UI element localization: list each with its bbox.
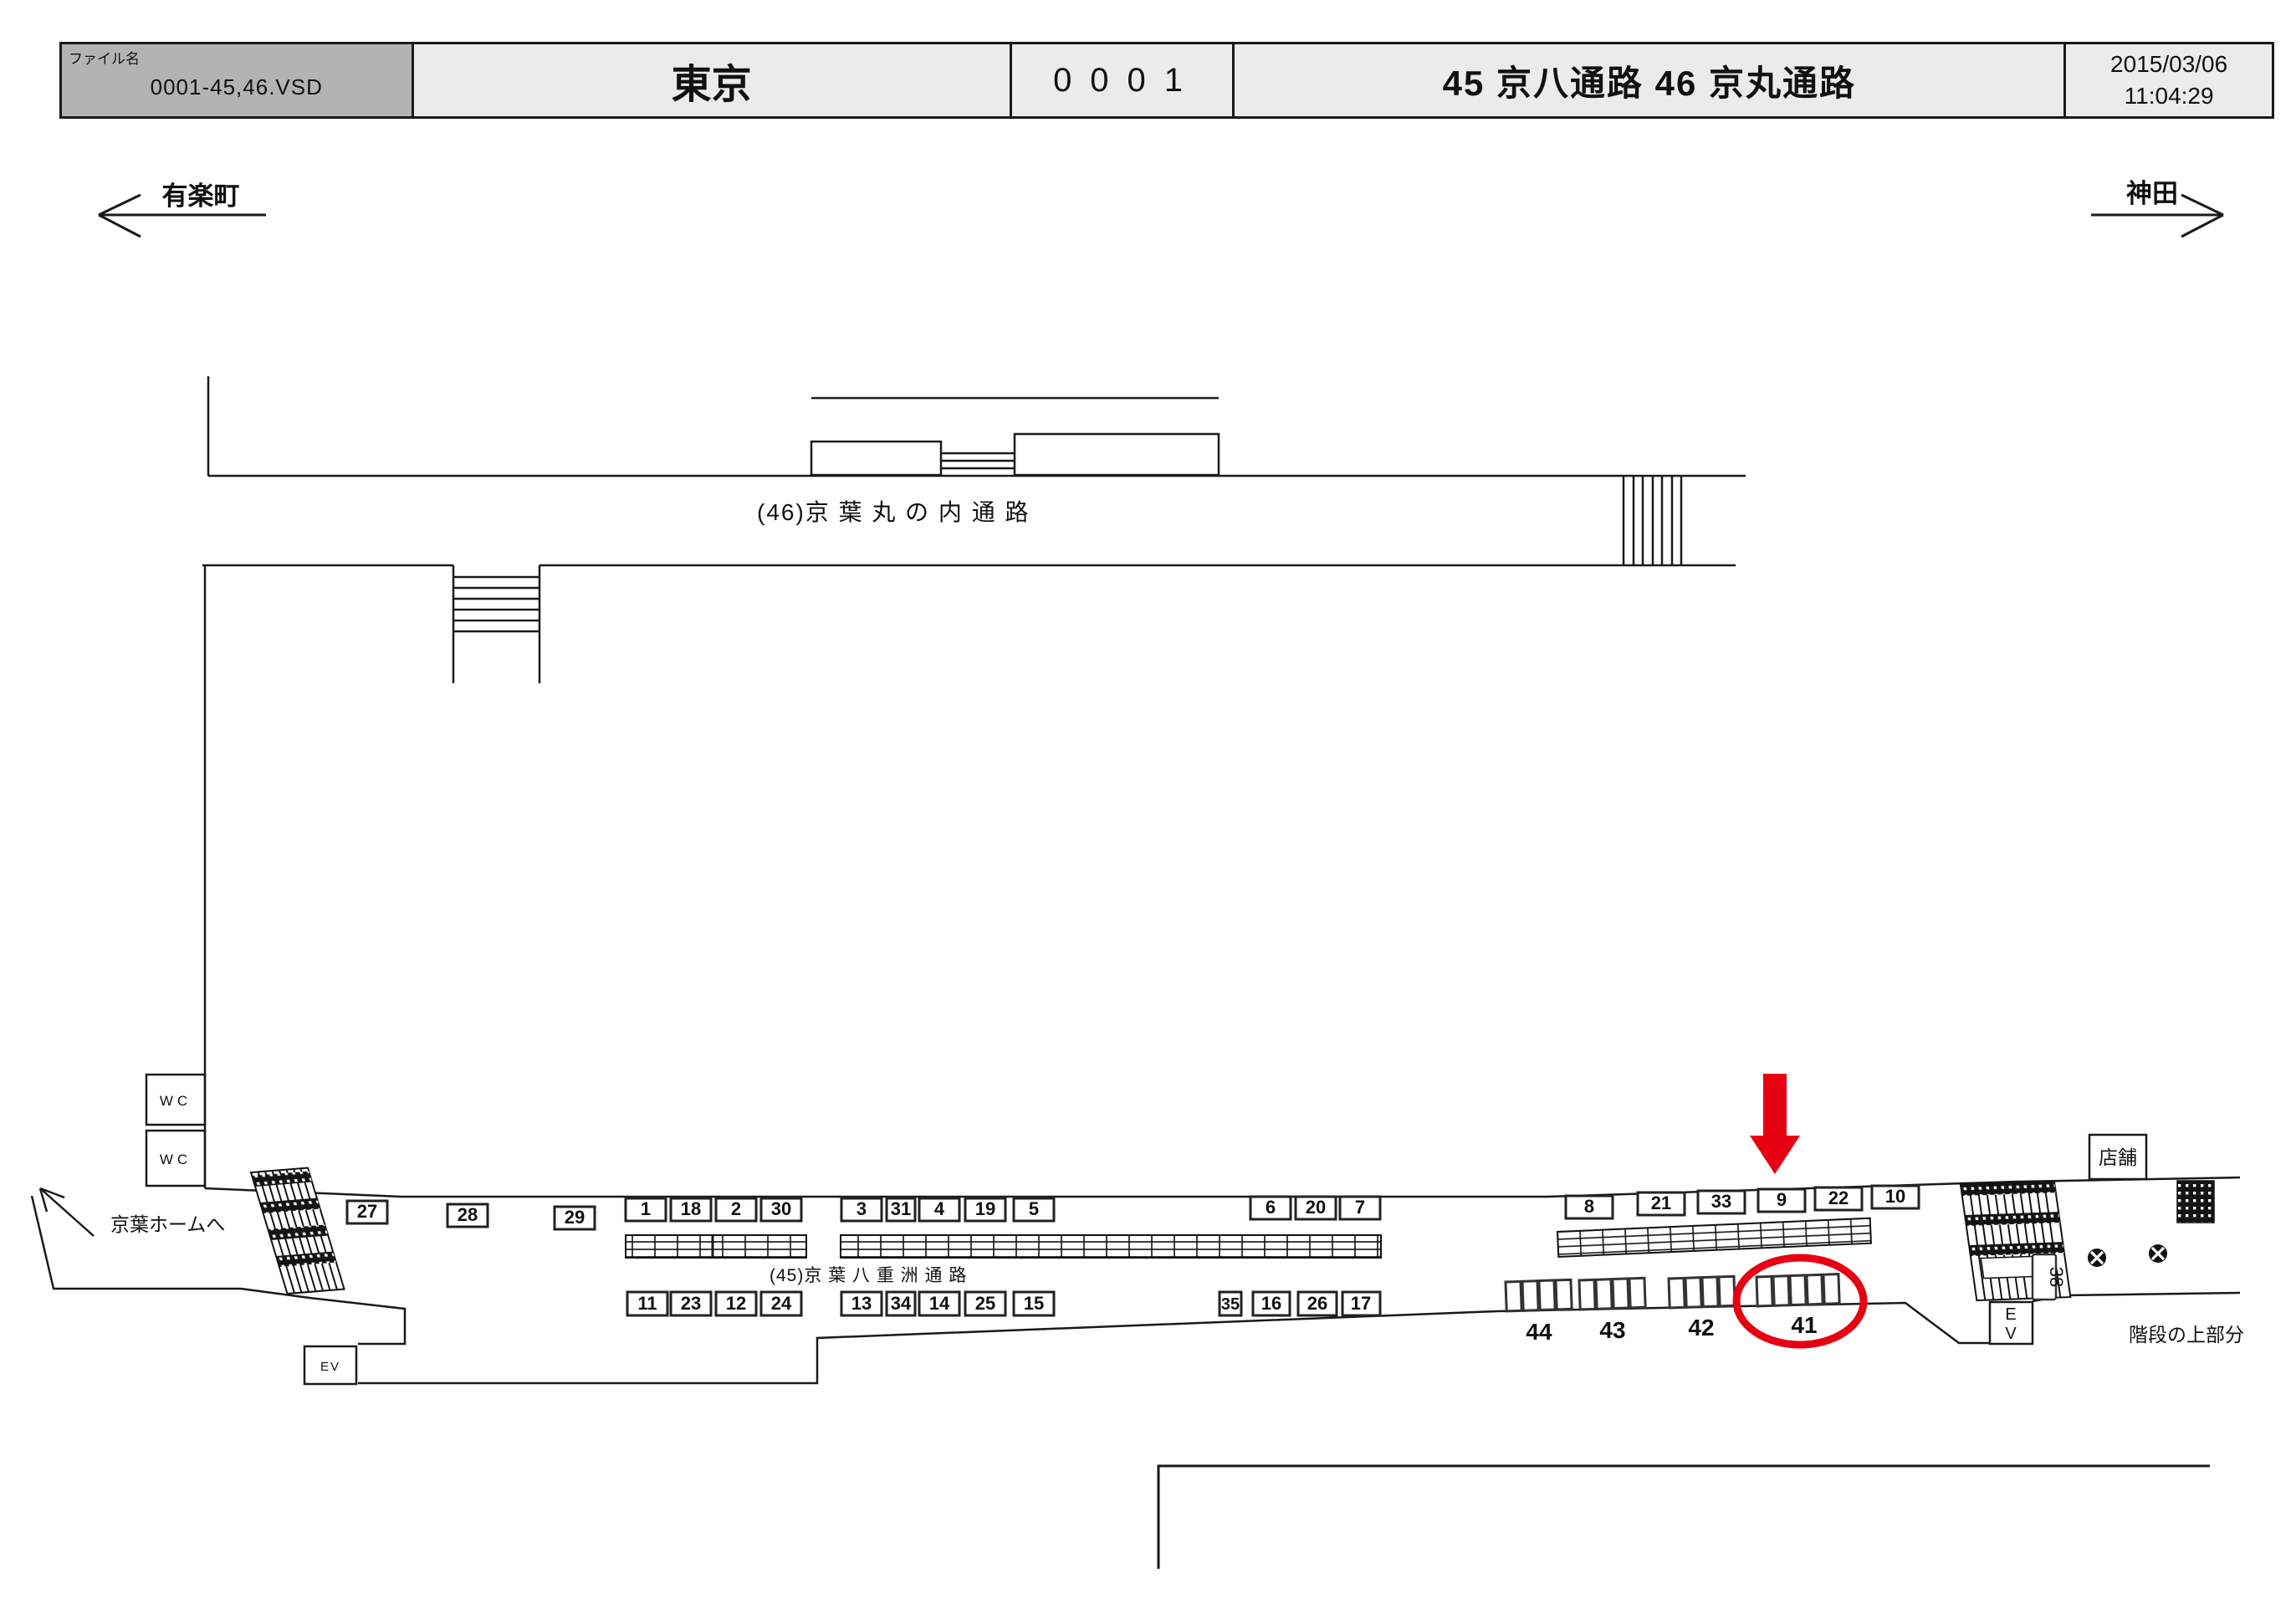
svg-text:15: 15 [1024,1293,1044,1314]
stairs-upper-left [453,565,539,683]
highlight-arrow [1750,1074,1800,1174]
stall-box: 24 [761,1292,801,1315]
svg-text:7: 7 [1355,1197,1365,1218]
keiyo-home-pointer: 京葉ホームへ [40,1188,225,1236]
svg-text:17: 17 [1351,1293,1371,1314]
floor-sign-groups: 44 43 42 41 [1506,1274,1839,1345]
stall-box: 20 [1296,1197,1336,1219]
svg-text:28: 28 [458,1204,478,1225]
direction-left-label: 有楽町 [162,181,240,211]
floor-sign-41 [1757,1274,1839,1306]
elevator-left-label: EV [320,1360,340,1374]
floor-sign-43 [1579,1278,1645,1310]
svg-text:24: 24 [771,1293,792,1314]
stall-box: 15 [1014,1292,1054,1315]
stall-box: 6 [1250,1197,1291,1219]
stall-box: 3 [841,1198,882,1221]
stall-box: 16 [1253,1292,1290,1315]
svg-text:6: 6 [1266,1197,1276,1218]
svg-text:20: 20 [1306,1197,1326,1218]
stall-box: 35 [1220,1292,1241,1315]
stall-row-top: 27 28 29 1 18 2 30 3 31 4 19 5 6 20 7 8 … [347,1186,1919,1229]
wc-label-1: WC [160,1093,192,1109]
floor-plan: 有楽町 神田 (46)京 葉 丸 の 内 通 路 WC WC [0,0,2296,1624]
direction-right: 神田 [2091,179,2223,237]
hatched-block [2177,1181,2214,1223]
concourse-room: WC WC [146,565,205,1188]
floor-sign-label: 44 [1526,1319,1552,1345]
stall-box: 11 [627,1292,667,1315]
elevator-left: EV [304,1346,356,1384]
stair-tag-label: 38 [2046,1267,2067,1287]
svg-text:27: 27 [357,1201,377,1222]
stall-box: 27 [347,1201,387,1223]
svg-text:10: 10 [1885,1186,1905,1207]
stairs-upper-right [1624,477,1681,564]
stall-box: 30 [761,1198,801,1221]
lower-area-outline [1158,1466,2210,1569]
svg-text:23: 23 [681,1293,701,1314]
stall-box: 22 [1815,1187,1862,1210]
stall-box: 9 [1758,1189,1805,1212]
stall-box: 34 [887,1292,915,1315]
stairs-lower-left [251,1168,345,1294]
stall-box: 2 [716,1198,756,1221]
column-symbol [2088,1249,2106,1267]
svg-text:12: 12 [726,1293,746,1314]
stall-box: 1 [626,1198,666,1221]
floor-sign-44 [1506,1279,1572,1311]
svg-text:4: 4 [934,1198,945,1219]
svg-text:35: 35 [1221,1295,1240,1314]
shop-box: 店舗 [2089,1135,2146,1179]
poster-grids [626,1218,1871,1258]
stall-row-bottom: 11 23 12 24 13 34 14 25 15 35 16 26 17 [627,1292,1380,1315]
svg-text:3: 3 [857,1198,867,1219]
keiyo-home-label: 京葉ホームへ [110,1213,225,1235]
svg-text:30: 30 [771,1198,791,1219]
keiyo-arrow-icon [40,1188,94,1236]
svg-text:1: 1 [641,1198,651,1219]
stall-box: 31 [887,1198,915,1221]
stair-top-label: 階段の上部分 [2129,1324,2244,1346]
svg-text:9: 9 [1777,1189,1787,1210]
svg-text:18: 18 [681,1198,701,1219]
stall-box: 8 [1566,1196,1613,1218]
stall-box: 10 [1872,1186,1919,1208]
elevator-right-label-v: V [2005,1325,2017,1343]
stall-box: 29 [555,1207,595,1229]
elevator-right-label-e: E [2005,1305,2016,1324]
wc-label-2: WC [160,1152,192,1167]
stall-box: 19 [965,1198,1005,1221]
svg-text:34: 34 [891,1293,912,1314]
floor-sign-label: 41 [1791,1312,1817,1338]
stall-box: 12 [716,1292,756,1315]
svg-text:2: 2 [731,1198,741,1219]
column-symbol [2149,1244,2167,1263]
svg-text:19: 19 [975,1198,995,1219]
stall-box: 5 [1014,1198,1054,1221]
stall-box: 13 [841,1292,882,1315]
stall-box: 18 [671,1198,711,1221]
svg-text:22: 22 [1828,1187,1849,1208]
svg-text:29: 29 [565,1207,585,1228]
svg-text:25: 25 [975,1293,995,1314]
stall-box: 21 [1638,1192,1685,1215]
lower-corridor-label: (45)京 葉 八 重 洲 通 路 [770,1266,967,1285]
svg-text:8: 8 [1584,1196,1594,1217]
stall-box: 23 [671,1292,711,1315]
svg-text:31: 31 [891,1198,911,1219]
svg-text:26: 26 [1307,1293,1327,1314]
stall-box: 4 [919,1198,959,1221]
svg-text:5: 5 [1029,1198,1039,1219]
floor-sign-42 [1669,1276,1735,1308]
direction-right-label: 神田 [2126,179,2178,208]
floor-sign-label: 43 [1599,1317,1625,1343]
stall-box: 33 [1698,1191,1745,1213]
svg-text:14: 14 [929,1293,950,1314]
elevator-right: E V [1990,1302,2033,1344]
svg-text:13: 13 [851,1293,872,1314]
upper-corridor: (46)京 葉 丸 の 内 通 路 [202,376,1746,683]
svg-text:21: 21 [1651,1192,1671,1213]
stall-box: 25 [965,1292,1005,1315]
stall-box: 28 [447,1204,488,1227]
floor-sign-label: 42 [1688,1315,1714,1341]
stall-box: 26 [1298,1292,1337,1315]
svg-text:11: 11 [637,1293,657,1314]
svg-text:16: 16 [1261,1293,1281,1314]
stall-box: 14 [919,1292,959,1315]
stall-box: 7 [1340,1197,1380,1219]
direction-left: 有楽町 [99,181,266,237]
shop-label: 店舗 [2099,1147,2137,1168]
stall-box: 17 [1342,1292,1380,1315]
svg-text:33: 33 [1711,1191,1731,1212]
upper-corridor-label: (46)京 葉 丸 の 内 通 路 [757,499,1030,525]
